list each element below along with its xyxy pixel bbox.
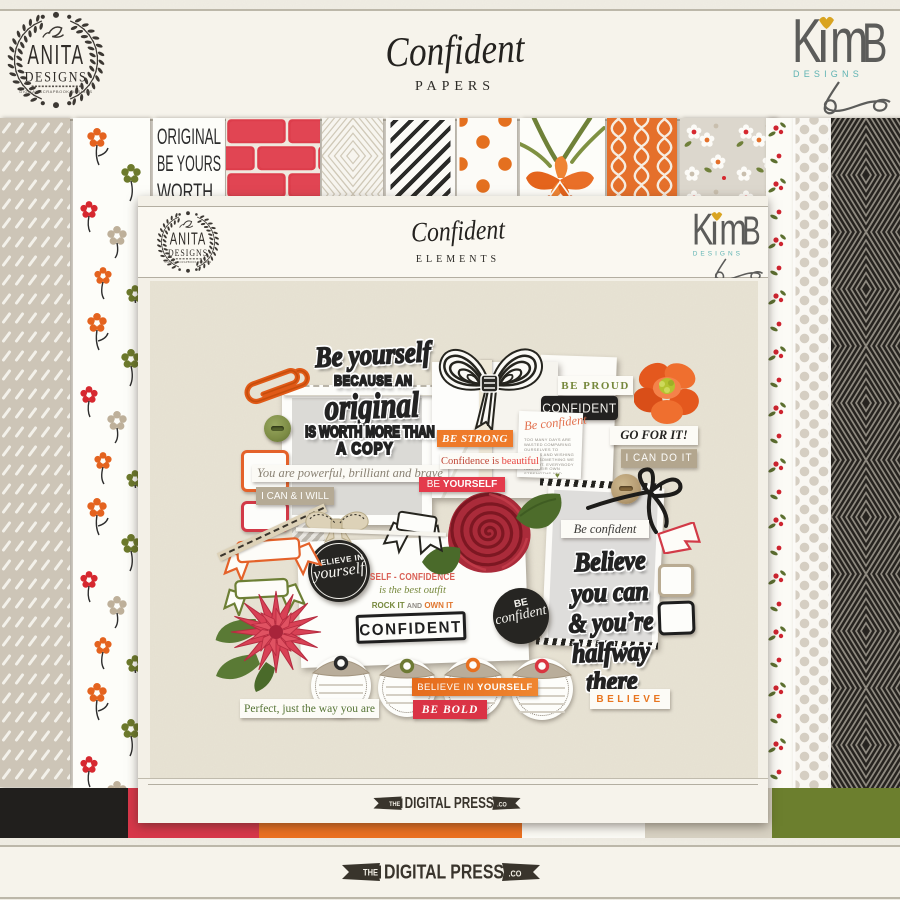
svg-text:THE: THE (363, 868, 378, 878)
svg-text:DESIGNS: DESIGNS (168, 247, 208, 258)
svg-text:.CO: .CO (509, 870, 522, 879)
svg-text:ANITA: ANITA (27, 39, 84, 70)
svg-text:ORIGINAL: ORIGINAL (157, 124, 221, 149)
svg-text:B: B (742, 209, 760, 253)
svg-text:K: K (692, 208, 713, 255)
svg-text:K: K (792, 10, 822, 76)
svg-text:DIGITAL PRESS: DIGITAL PRESS (405, 795, 494, 812)
svg-text:DESIGNS: DESIGNS (693, 250, 743, 257)
svg-text:DIGITAL SCRAPBOOK DESIGNS: DIGITAL SCRAPBOOK DESIGNS (165, 260, 212, 264)
svg-text:BE YOURS: BE YOURS (157, 151, 221, 176)
svg-text:DESIGNS: DESIGNS (25, 68, 88, 84)
svg-text:DESIGNS: DESIGNS (793, 69, 863, 79)
svg-text:B: B (862, 13, 887, 75)
svg-text:THE: THE (389, 801, 401, 808)
svg-text:DIGITAL SCRAPBOOK DESIGNS: DIGITAL SCRAPBOOK DESIGNS (19, 89, 92, 94)
svg-text:DIGITAL PRESS: DIGITAL PRESS (384, 861, 504, 884)
svg-text:.CO: .CO (497, 803, 507, 809)
